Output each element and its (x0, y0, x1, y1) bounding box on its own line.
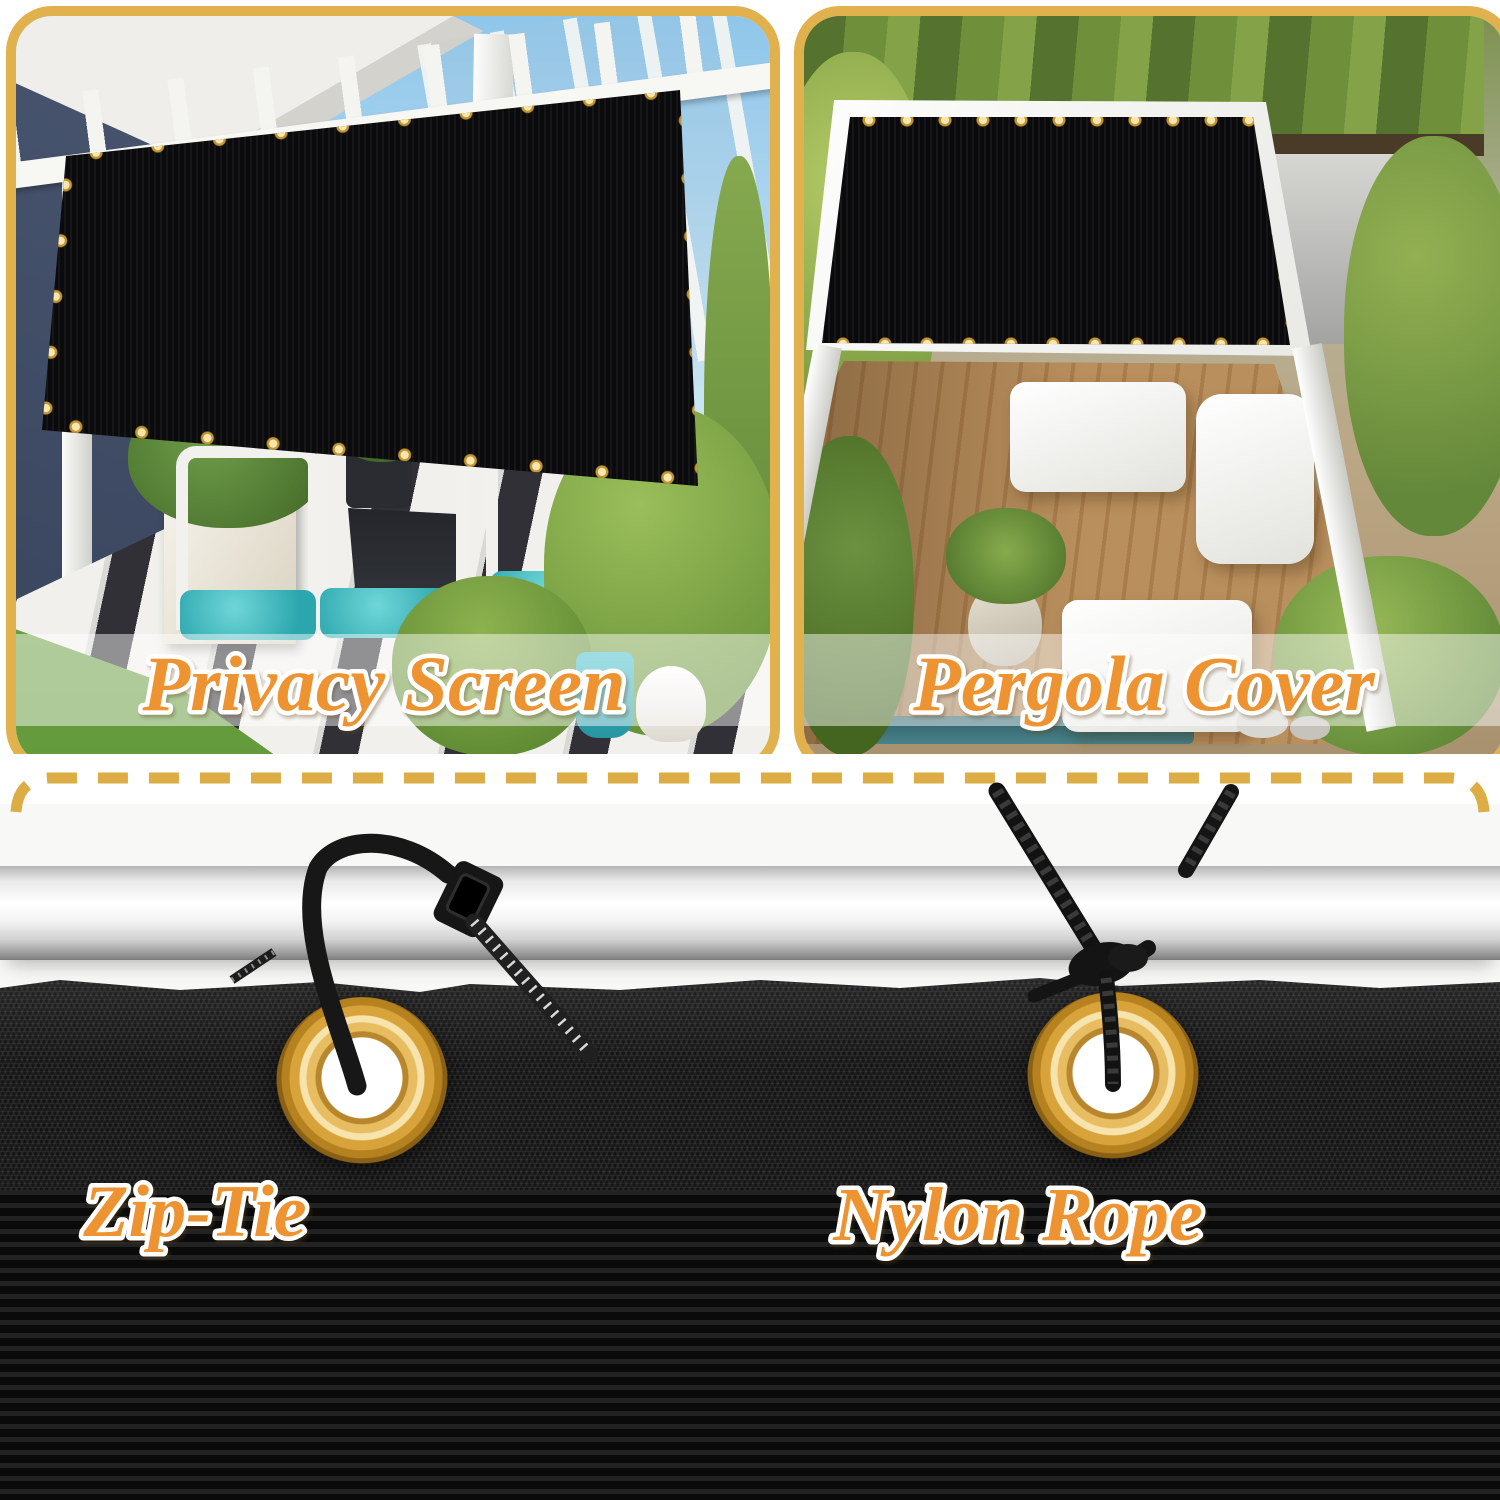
demo-overlay (0, 754, 1500, 1500)
caption-band (804, 634, 1500, 726)
privacy-screen-panel: Privacy Screen (6, 6, 780, 774)
patio-chair (176, 446, 320, 630)
tree (1344, 136, 1500, 536)
zip-tie-graphic (232, 843, 590, 1086)
nylon-rope-graphic (997, 791, 1231, 1084)
mounting-demo-section: Zip-Tie Nylon Rope (0, 754, 1500, 1500)
product-infographic: Privacy Screen (0, 0, 1500, 1500)
pergola-cover-panel: Pergola Cover (794, 6, 1500, 774)
chair-cushion (180, 590, 316, 640)
outdoor-armchair (1196, 394, 1314, 564)
outdoor-sofa (1010, 382, 1186, 492)
caption-band (16, 634, 770, 726)
yucca-plant (946, 508, 1066, 604)
dashed-guide-line (16, 778, 1484, 812)
